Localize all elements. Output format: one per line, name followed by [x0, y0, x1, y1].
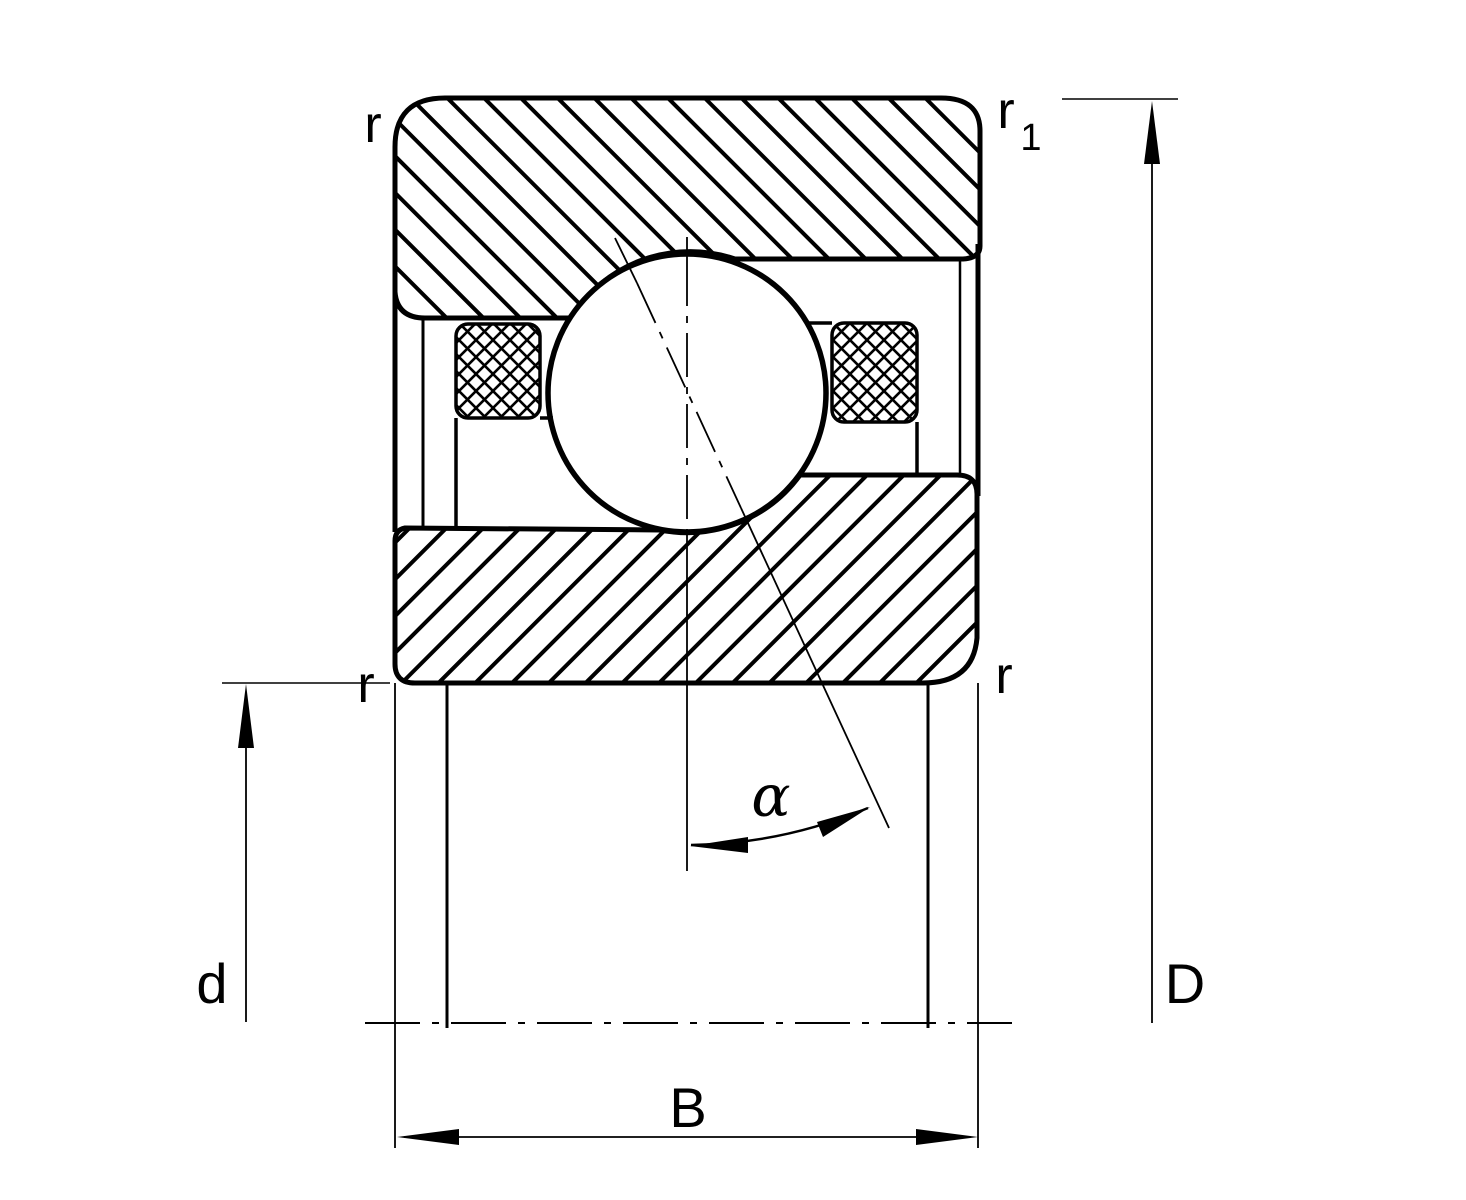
- label-r1-base: r: [997, 82, 1014, 140]
- label-B: B: [669, 1076, 706, 1139]
- label-r-bottom-left: r: [357, 656, 374, 714]
- label-alpha: α: [751, 762, 790, 830]
- D-dimension-arrow: [1062, 99, 1178, 1023]
- d-dimension-arrow: [222, 683, 390, 1022]
- label-d: d: [196, 952, 227, 1015]
- D-arrowhead-icon: [1144, 101, 1160, 164]
- alpha-arrowhead-left-icon: [690, 837, 748, 853]
- left-seal: [456, 324, 553, 530]
- bearing-cross-section-diagram: r r 1 r r α d D B: [0, 0, 1466, 1200]
- B-arrowhead-right-icon: [916, 1129, 978, 1145]
- label-r1-subscript: 1: [1020, 117, 1041, 159]
- d-arrowhead-icon: [238, 684, 254, 748]
- label-D: D: [1165, 952, 1205, 1015]
- alpha-arrowhead-right-icon: [817, 807, 870, 837]
- B-arrowhead-left-icon: [397, 1129, 459, 1145]
- label-r-top-left: r: [364, 96, 381, 154]
- label-r-right: r: [995, 647, 1012, 705]
